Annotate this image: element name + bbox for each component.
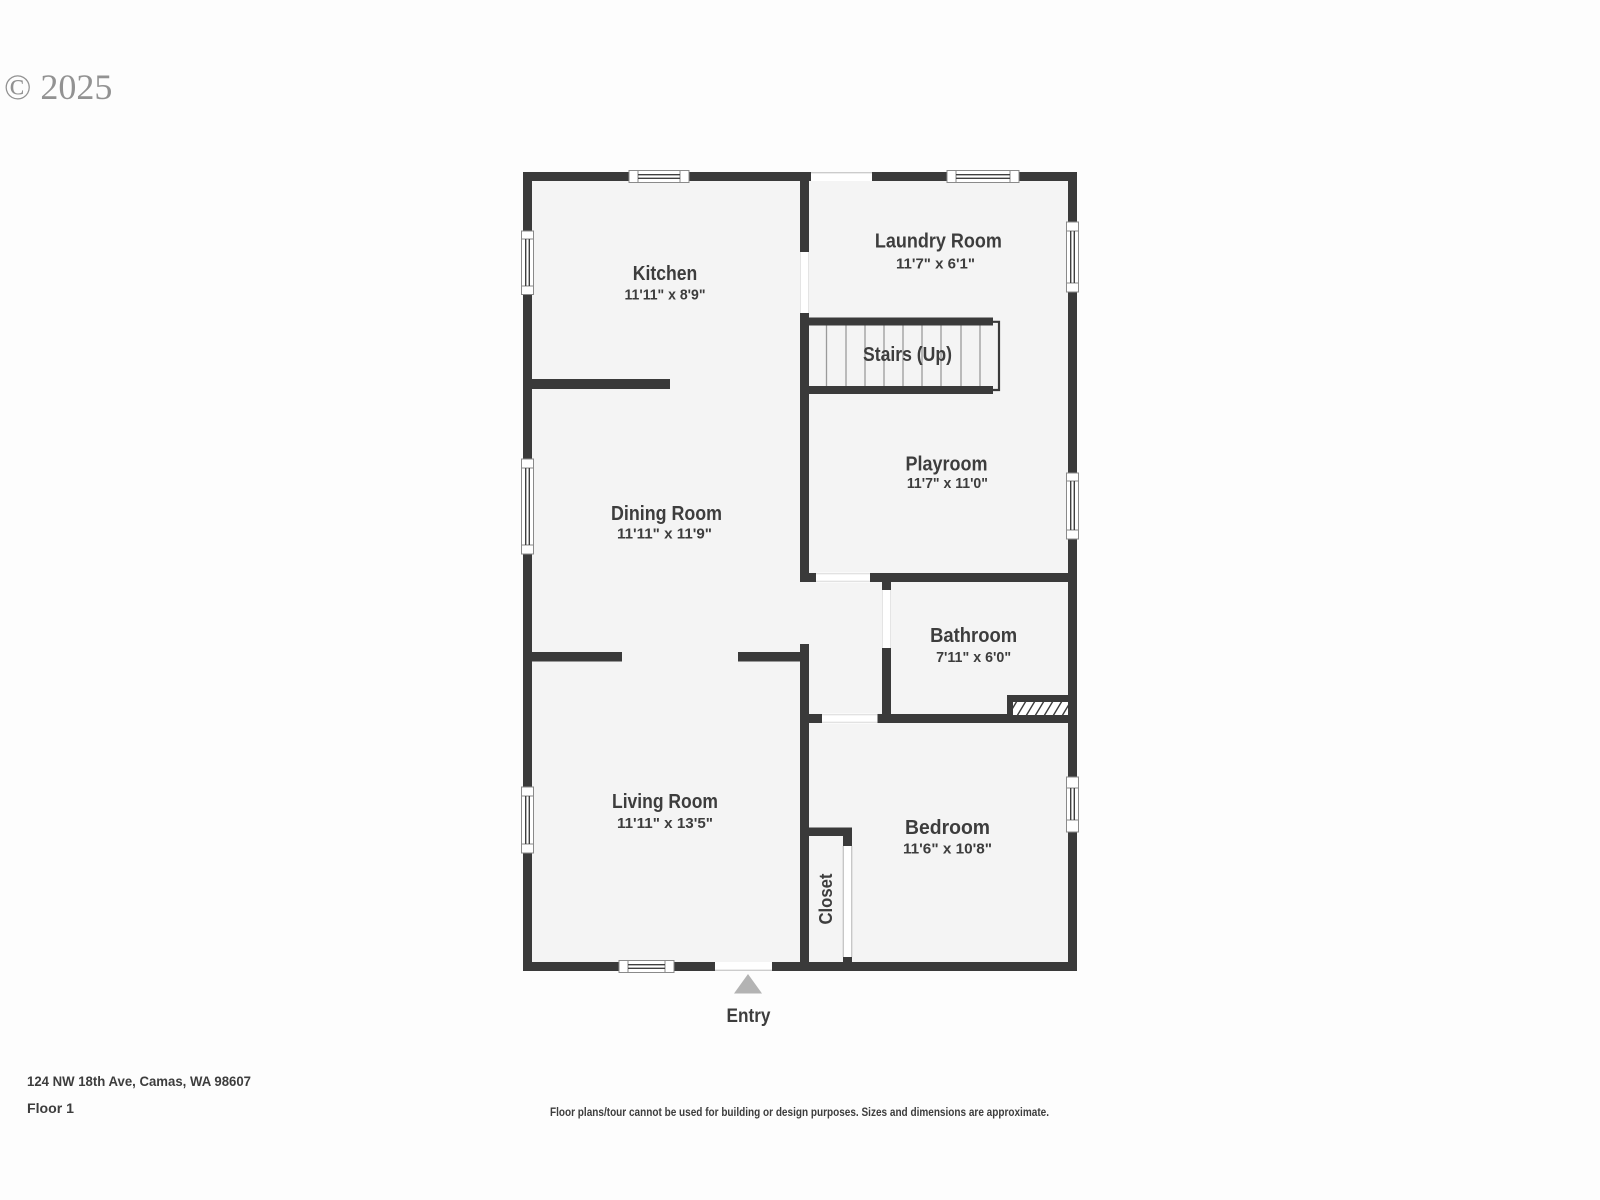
- svg-text:11'7" x 11'0": 11'7" x 11'0": [907, 475, 988, 492]
- svg-text:7'11" x 6'0": 7'11" x 6'0": [936, 649, 1011, 666]
- svg-text:Bathroom: Bathroom: [930, 625, 1017, 647]
- svg-text:Entry: Entry: [727, 1006, 771, 1027]
- svg-text:Laundry Room: Laundry Room: [875, 231, 1002, 253]
- svg-text:11'11" x 13'5": 11'11" x 13'5": [617, 815, 713, 832]
- svg-text:Bedroom: Bedroom: [905, 817, 990, 839]
- svg-text:11'7" x 6'1": 11'7" x 6'1": [896, 256, 975, 273]
- svg-text:Floor plans/tour cannot be use: Floor plans/tour cannot be used for buil…: [550, 1105, 1049, 1119]
- svg-text:11'6" x 10'8": 11'6" x 10'8": [903, 841, 992, 858]
- svg-text:Closet: Closet: [815, 874, 836, 925]
- svg-text:11'11" x 11'9": 11'11" x 11'9": [617, 526, 712, 543]
- svg-text:Stairs (Up): Stairs (Up): [863, 344, 952, 366]
- svg-text:11'11" x 8'9": 11'11" x 8'9": [625, 287, 706, 304]
- svg-text:Playroom: Playroom: [906, 454, 988, 476]
- svg-text:124 NW 18th Ave, Camas, WA 986: 124 NW 18th Ave, Camas, WA 98607: [27, 1073, 251, 1089]
- svg-text:Floor 1: Floor 1: [27, 1100, 74, 1116]
- svg-text:© 2025: © 2025: [4, 67, 112, 107]
- svg-text:Living Room: Living Room: [612, 791, 718, 813]
- svg-text:Kitchen: Kitchen: [633, 263, 698, 285]
- svg-text:Dining Room: Dining Room: [611, 503, 722, 525]
